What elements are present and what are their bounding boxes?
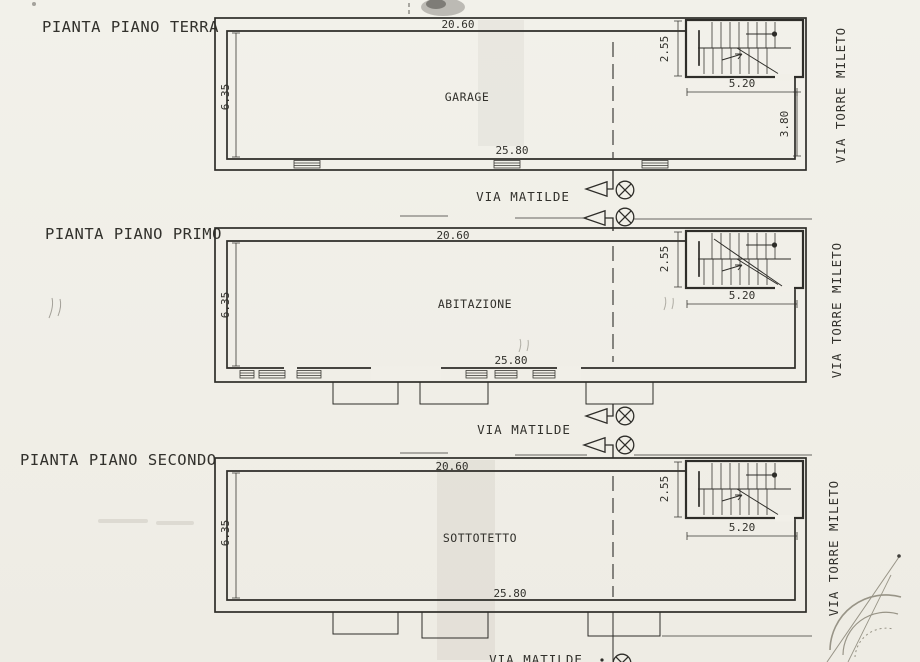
scan-artifacts xyxy=(32,0,673,660)
dim-stair-width: 5.20 xyxy=(729,77,756,90)
direction-arrow-icon xyxy=(584,438,605,452)
dim-stair-depth: 2.55 xyxy=(658,246,671,273)
dim-top-width: 20.60 xyxy=(436,229,469,242)
crossed-circle-icon xyxy=(616,436,634,454)
dim-left-height: 6.35 xyxy=(219,292,232,319)
direction-arrow-icon xyxy=(586,182,607,196)
plan-title-terra: PIANTA PIANO TERRA xyxy=(42,18,219,36)
stairwell xyxy=(686,461,803,522)
plan-sheet: PIANTA PIANO TERRA 20.60 6.35 GARAGE 25.… xyxy=(0,0,920,662)
street-label-matilde: VIA MATILDE xyxy=(477,422,571,437)
stairwell xyxy=(686,231,803,292)
crossed-circle-icon xyxy=(616,208,634,226)
street-label-matilde: VIA MATILDE xyxy=(489,652,583,662)
axis-connector xyxy=(607,170,613,189)
stairwell xyxy=(686,20,803,81)
floor-plan-secondo: PIANTA PIANO SECONDO 20.60 6.35 SOTTOTET… xyxy=(20,451,841,638)
street-label-torre-mileto: VIA TORRE MILETO xyxy=(829,242,844,378)
axis-connector xyxy=(605,445,613,458)
dim-stair-depth: 2.55 xyxy=(658,36,671,63)
dim-bottom-width: 25.80 xyxy=(493,587,526,600)
street-via-matilde-1: VIA MATILDE xyxy=(400,170,812,231)
street-label-matilde: VIA MATILDE xyxy=(476,189,570,204)
dim-bottom-width: 25.80 xyxy=(495,144,528,157)
crossed-circle-icon xyxy=(616,407,634,425)
balcony xyxy=(333,382,653,404)
dim-right-depth: 3.80 xyxy=(778,111,791,138)
dim-stair-depth: 2.55 xyxy=(658,476,671,503)
street-label-torre-mileto: VIA TORRE MILETO xyxy=(826,480,841,616)
dim-line-left xyxy=(232,473,240,598)
dim-bottom-width: 25.80 xyxy=(494,354,527,367)
dim-left-height: 6.35 xyxy=(219,520,232,547)
axis-connector xyxy=(605,218,613,231)
crossed-circle-icon xyxy=(616,181,634,199)
dim-line-stair-depth xyxy=(674,21,682,76)
dim-left-height: 6.35 xyxy=(219,84,232,111)
room-label-garage: GARAGE xyxy=(445,90,490,104)
dim-stair-width: 5.20 xyxy=(729,289,756,302)
direction-arrow-icon xyxy=(586,409,607,423)
dim-stair-width: 5.20 xyxy=(729,521,756,534)
dim-top-width: 20.60 xyxy=(435,460,468,473)
room-label-sottotetto: SOTTOTETTO xyxy=(443,531,517,545)
street-via-matilde-2: VIA MATILDE xyxy=(400,404,812,458)
scanned-floor-plan-document: PIANTA PIANO TERRA 20.60 6.35 GARAGE 25.… xyxy=(0,0,920,662)
room-label-abitazione: ABITAZIONE xyxy=(438,297,512,311)
dim-line-left xyxy=(232,33,240,157)
plan-title-primo: PIANTA PIANO PRIMO xyxy=(45,225,222,243)
plan-title-secondo: PIANTA PIANO SECONDO xyxy=(20,451,217,469)
street-label-torre-mileto: VIA TORRE MILETO xyxy=(833,27,848,163)
dim-top-width: 20.60 xyxy=(441,18,474,31)
dim-line-left xyxy=(232,243,240,366)
window xyxy=(294,161,668,169)
axis-connector xyxy=(607,404,613,416)
roof-overhang-tab xyxy=(333,612,812,638)
street-via-matilde-3: VIA MATILDE xyxy=(489,652,631,662)
floor-plan-terra: PIANTA PIANO TERRA 20.60 6.35 GARAGE 25.… xyxy=(42,3,848,170)
direction-arrow-icon xyxy=(584,211,605,225)
crossed-circle-icon xyxy=(613,654,631,662)
floor-plan-primo: PIANTA PIANO PRIMO xyxy=(45,225,844,404)
street-curb-line xyxy=(400,453,812,455)
